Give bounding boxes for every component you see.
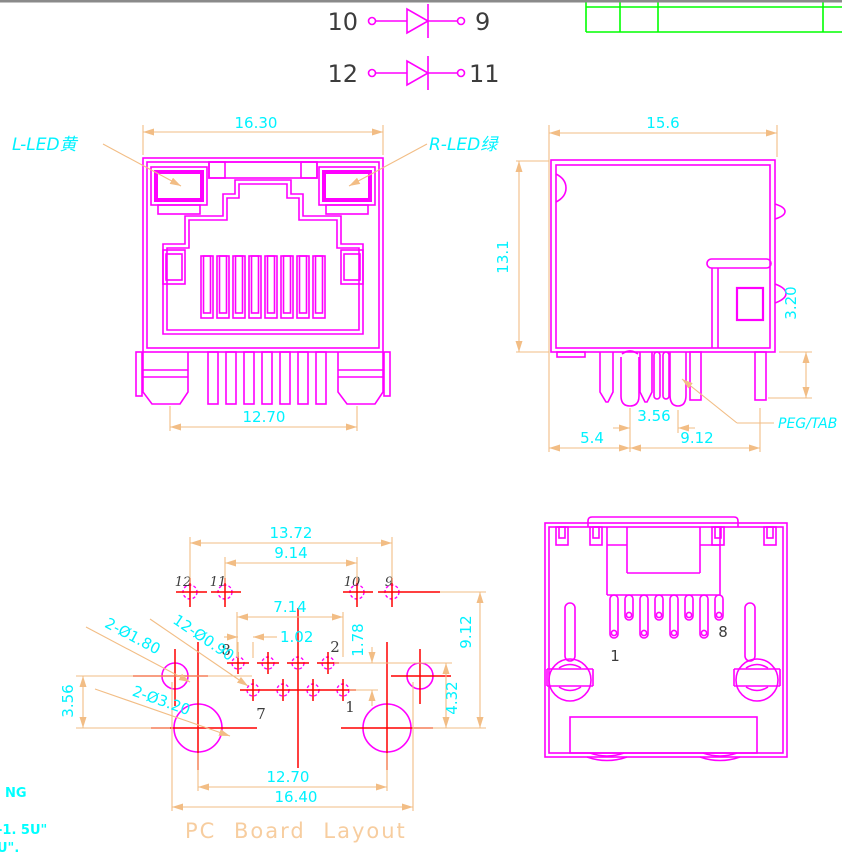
latch-hole (737, 288, 763, 320)
front-width-dim: 16.30 (235, 114, 278, 132)
hole-label-10: 10 (344, 575, 361, 590)
title-block-grid (586, 3, 842, 33)
cad-drawing-canvas: 10 9 12 11 (0, 0, 842, 854)
pcb-dim-9-12: 9.12 (457, 615, 475, 648)
side-view: 15.6 13.1 3.20 3.56 5.4 9.12 PEG/TAB (494, 114, 837, 452)
pcb-dim-1-78: 1.78 (349, 623, 367, 656)
note-line2: -1. 5U" (0, 823, 47, 838)
pin-label-2: 2 (330, 638, 340, 656)
pcb-dim-3-56: 3.56 (59, 684, 77, 717)
pcb-dim-12-70: 12.70 (267, 768, 310, 786)
pcb-top-holes: 12 11 10 9 (175, 575, 440, 607)
bottom-view-pins (610, 595, 723, 638)
side-height-dim: 13.1 (494, 240, 512, 273)
bottom-view: 1 8 (545, 517, 787, 761)
diode1-anode-pin: 10 (327, 8, 358, 36)
diode1-symbol (407, 9, 428, 33)
pcb-dim-16-40: 16.40 (275, 788, 318, 806)
peg-tab-shape (670, 352, 686, 406)
front-view: 16.30 12.70 L-LED黄 R-LED绿 (12, 114, 499, 431)
jack-opening (163, 180, 363, 334)
hole-label-12: 12 (175, 575, 192, 590)
pin-label-1: 1 (345, 698, 355, 716)
diode1-cathode-pin: 9 (475, 8, 490, 36)
pcb-dim-13-72: 13.72 (270, 524, 313, 542)
drawing-svg: 10 9 12 11 (0, 0, 842, 854)
diode2-cathode-pin: 11 (469, 60, 500, 88)
pcb-dim-7-14: 7.14 (273, 598, 306, 616)
diode2-cathode-terminal (458, 70, 465, 77)
pcb-dim-9-14: 9.14 (274, 544, 307, 562)
pcb-dim-1-02: 1.02 (280, 628, 313, 646)
diode2-anode-pin: 12 (327, 60, 358, 88)
peg-tab-label: PEG/TAB (778, 416, 837, 432)
pcb-layout-title: PC Board Layout (185, 819, 407, 843)
note-line3: U". (0, 841, 19, 854)
note-line1: NG (5, 786, 27, 801)
margin-notes: NG -1. 5U" U". (0, 786, 47, 854)
side-peg-pitch-dim: 3.56 (637, 407, 670, 425)
side-edge-dim: 5.4 (580, 429, 604, 447)
left-led-label: L-LED黄 (12, 135, 79, 155)
diode2-symbol (407, 61, 428, 85)
pcb-layout: 12 11 10 9 8 2 7 1 13.72 (59, 524, 486, 843)
pcb-callout-pins: 12-Ø0.90 (170, 611, 238, 665)
diode2-anode-terminal (369, 70, 376, 77)
led-diode-schematic: 10 9 12 11 (327, 4, 499, 90)
side-span-dim: 9.12 (680, 429, 713, 447)
hole-label-11: 11 (210, 575, 227, 590)
window-top-edge (0, 0, 842, 3)
contact-comb (201, 256, 325, 318)
side-standoff-dim: 3.20 (782, 286, 800, 319)
front-feet-dim: 12.70 (243, 408, 286, 426)
pcb-callout-shield: 2-Ø3.20 (130, 682, 193, 719)
bottom-view-pin1-label: 1 (610, 647, 620, 665)
diode1-cathode-terminal (458, 18, 465, 25)
right-led-label: R-LED绿 (429, 135, 499, 155)
pcb-dim-4-32: 4.32 (443, 681, 461, 714)
bottom-view-pin8-label: 8 (718, 623, 728, 641)
pin-label-7: 7 (256, 705, 266, 723)
diode1-anode-terminal (369, 18, 376, 25)
side-width-dim: 15.6 (646, 114, 679, 132)
